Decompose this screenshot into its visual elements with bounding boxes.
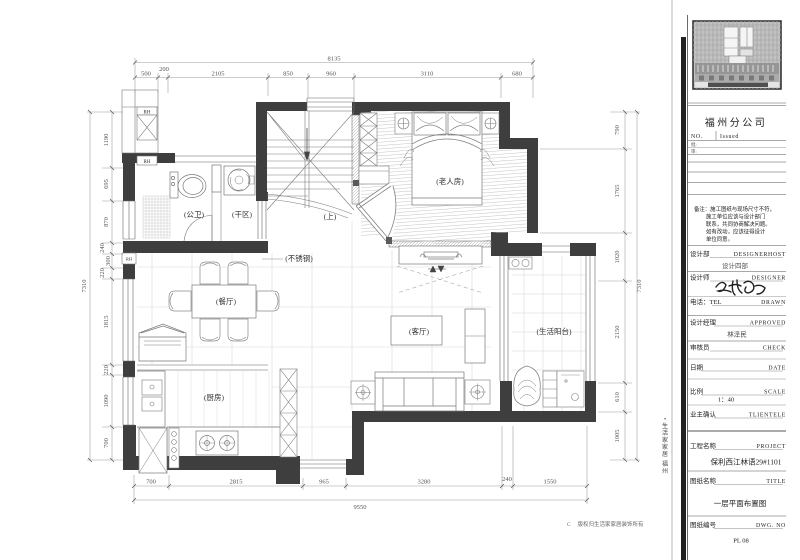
svg-text:240: 240	[502, 476, 512, 483]
svg-text:790: 790	[614, 125, 621, 135]
svg-text:保利西江林语29#1101: 保利西江林语29#1101	[711, 457, 782, 467]
svg-text:1815: 1815	[103, 316, 110, 329]
svg-text:1765: 1765	[614, 185, 621, 198]
svg-text:500: 500	[141, 71, 151, 78]
svg-text:1190: 1190	[103, 134, 110, 147]
svg-text:活: 活	[662, 429, 668, 437]
svg-text:审核员: 审核员	[690, 343, 710, 352]
svg-text:2815: 2815	[230, 479, 243, 486]
svg-text:DWG. NO: DWG. NO	[756, 523, 786, 529]
svg-text:695: 695	[103, 179, 110, 189]
svg-text:DESIGNERHOST: DESIGNERHOST	[734, 252, 786, 258]
svg-text:220: 220	[103, 365, 110, 375]
svg-text:1550: 1550	[544, 479, 557, 486]
svg-text:240: 240	[99, 243, 106, 253]
svg-text:RH: RH	[144, 160, 151, 165]
svg-text:680: 680	[512, 71, 522, 78]
svg-text:图纸编号: 图纸编号	[690, 520, 717, 529]
svg-text:1：40: 1：40	[718, 397, 734, 404]
svg-text:960: 960	[326, 71, 336, 78]
svg-text:700: 700	[146, 479, 156, 486]
svg-text:(干区): (干区)	[232, 210, 252, 219]
svg-text:965: 965	[319, 479, 329, 486]
svg-text:1005: 1005	[614, 430, 621, 443]
svg-text:9550: 9550	[354, 504, 367, 511]
svg-text:1020: 1020	[614, 251, 621, 264]
svg-text:州: 州	[662, 468, 668, 475]
svg-text:DATE: DATE	[768, 366, 786, 372]
svg-text:(上): (上)	[324, 212, 337, 221]
svg-text:居: 居	[662, 451, 668, 458]
svg-text:300: 300	[105, 256, 112, 266]
svg-text:(不锈钢): (不锈钢)	[285, 253, 313, 263]
svg-text:设计部: 设计部	[690, 249, 710, 258]
svg-text:•: •	[664, 417, 666, 423]
svg-text:审:: 审:	[691, 148, 697, 155]
svg-text:850: 850	[283, 71, 293, 78]
svg-text:Issued: Issued	[720, 134, 739, 140]
svg-text:家: 家	[662, 436, 668, 444]
svg-text:设计四部: 设计四部	[722, 261, 749, 270]
svg-text:(厨房): (厨房)	[204, 392, 224, 402]
svg-text:福州分公司: 福州分公司	[705, 116, 768, 129]
svg-text:RH: RH	[126, 257, 133, 262]
svg-text:图纸名称: 图纸名称	[690, 476, 717, 485]
svg-text:日期: 日期	[690, 364, 704, 372]
svg-text:生: 生	[662, 422, 668, 430]
svg-text:DESIGNER: DESIGNER	[752, 276, 786, 282]
svg-text:联系，共同协商解决问题。: 联系，共同协商解决问题。	[706, 220, 771, 228]
svg-text:PL 08: PL 08	[733, 538, 748, 545]
svg-text:施工单位应该与设计部门: 施工单位应该与设计部门	[706, 213, 765, 221]
svg-text:610: 610	[614, 392, 621, 402]
svg-text:(生活阳台): (生活阳台)	[537, 326, 572, 336]
svg-text:备注：施工图纸与现场尺寸不符，: 备注：施工图纸与现场尺寸不符，	[694, 205, 775, 213]
svg-text:NO.: NO.	[691, 134, 703, 140]
svg-text:电话：TEL: 电话：TEL	[690, 297, 721, 306]
svg-text:(老人房): (老人房)	[436, 176, 464, 186]
svg-text:福: 福	[662, 460, 668, 468]
svg-text:2105: 2105	[212, 71, 225, 78]
svg-text:3110: 3110	[421, 71, 434, 78]
svg-text:林泽民: 林泽民	[727, 330, 747, 339]
svg-text:DRAWN: DRAWN	[761, 300, 786, 306]
svg-text:870: 870	[103, 217, 110, 227]
svg-text:(客厅): (客厅)	[409, 326, 429, 336]
svg-text:700: 700	[103, 438, 110, 448]
svg-text:3280: 3280	[418, 479, 431, 486]
svg-text:TITLE: TITLE	[766, 479, 786, 485]
svg-text:业主确认: 业主确认	[690, 410, 717, 419]
svg-text:PROJECT: PROJECT	[757, 444, 786, 450]
svg-text:7310: 7310	[81, 280, 88, 293]
svg-text:家: 家	[662, 443, 668, 451]
svg-text:工程名称: 工程名称	[690, 441, 717, 450]
svg-text:(公卫): (公卫)	[184, 210, 204, 219]
svg-text:比例: 比例	[690, 387, 703, 396]
svg-text:RH: RH	[144, 111, 151, 116]
svg-text:SCALE: SCALE	[764, 390, 786, 396]
svg-text:2150: 2150	[614, 326, 621, 339]
svg-text:APPROVED: APPROVED	[750, 321, 786, 327]
svg-text:单位同意。: 单位同意。	[706, 235, 733, 243]
svg-text:(餐厅): (餐厅)	[216, 297, 236, 306]
svg-text:CHECK: CHECK	[763, 346, 786, 352]
svg-text:200: 200	[159, 66, 169, 73]
svg-text:1090: 1090	[103, 395, 110, 408]
svg-text:TLIENTELE: TLIENTELE	[749, 413, 786, 419]
svg-text:C 版权归生活家家居装饰所有: C 版权归生活家家居装饰所有	[567, 520, 644, 528]
svg-text:设计师: 设计师	[690, 273, 710, 282]
svg-text:批:: 批:	[691, 141, 697, 148]
svg-text:7310: 7310	[636, 280, 643, 293]
svg-text:如有改动，应该征得设计: 如有改动，应该征得设计	[706, 228, 766, 236]
svg-text:设计经理: 设计经理	[690, 318, 717, 327]
svg-text:220: 220	[99, 268, 106, 278]
svg-text:8135: 8135	[328, 56, 341, 63]
svg-text:一层平面布置图: 一层平面布置图	[714, 498, 767, 508]
